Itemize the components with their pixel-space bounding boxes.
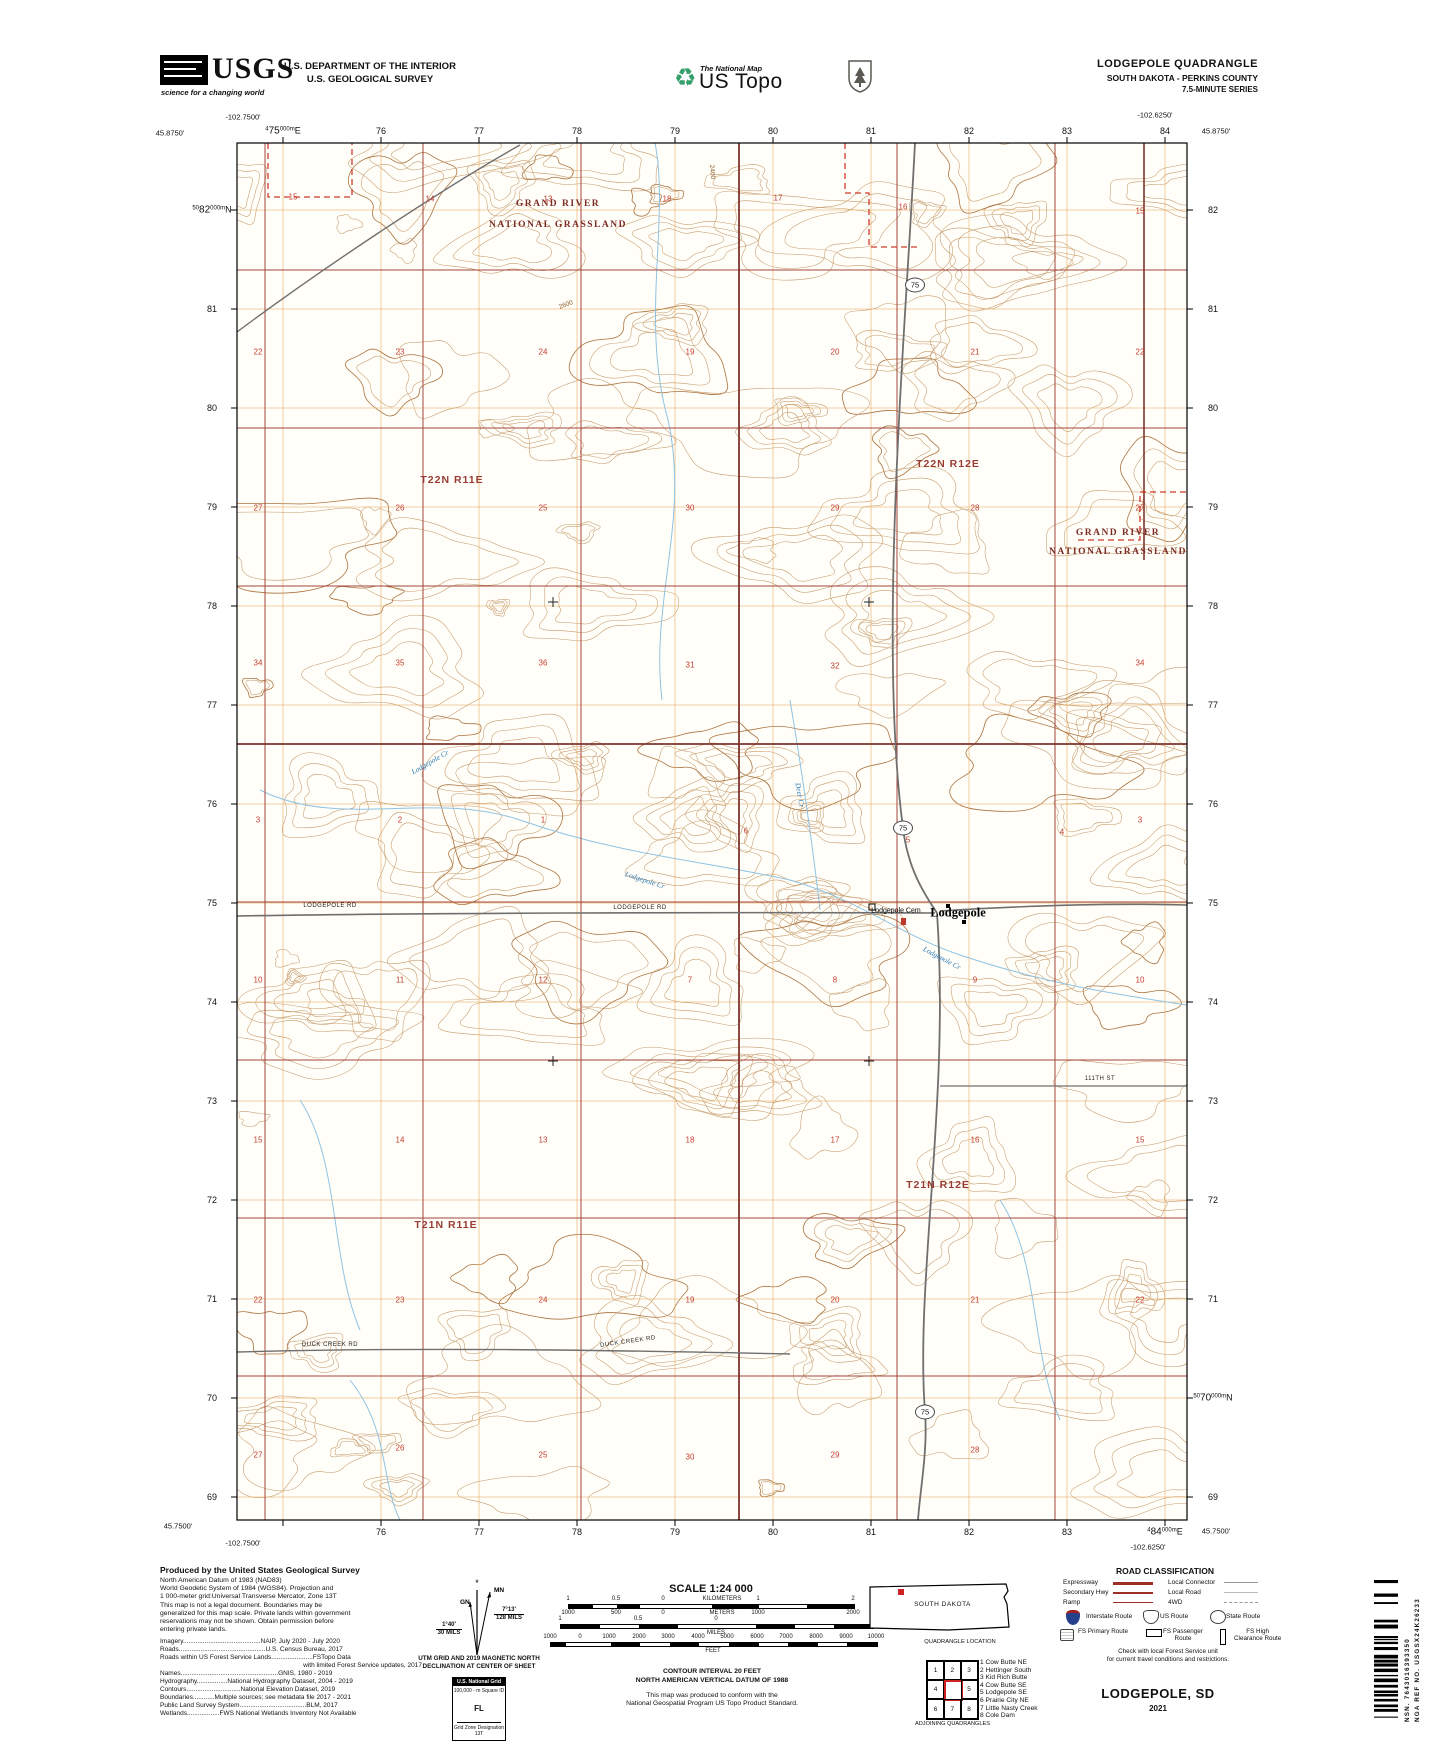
section-number: 16 (971, 1136, 980, 1145)
scale-bar-label: 2000 (632, 1634, 645, 1640)
scale-bar-label: 1 (558, 1616, 561, 1622)
section-number: 34 (1136, 659, 1145, 668)
usng-header: U.S. National Grid (453, 1678, 505, 1686)
northing-label-right: 75 (1208, 898, 1218, 908)
scale-bar-label: METERS (709, 1610, 734, 1616)
northing-label-left: 81 (207, 304, 217, 314)
mn-declination-value: 7°13' 128 MILS (494, 1607, 524, 1622)
scale-title: SCALE 1:24 000 (601, 1583, 821, 1595)
corner-coordinate: -102.7500' (225, 113, 260, 122)
route-shield: 75 (893, 821, 913, 836)
easting-label-bottom: 77 (474, 1527, 484, 1537)
section-number: 7 (688, 976, 692, 985)
section-number: 13 (539, 1136, 548, 1145)
forest-service-note: Check with local Forest Service unit for… (1088, 1648, 1248, 1664)
legend-label: US Route (1160, 1613, 1188, 1620)
conformance-note1: This map was produced to conform with th… (562, 1692, 862, 1699)
easting-label-top: 82 (964, 126, 974, 136)
northing-label-left: 5082000mN (192, 205, 231, 216)
scale-bar-label: 1 (756, 1596, 759, 1602)
place-label: Lodgepole (930, 906, 986, 921)
scale-bar-label: 2 (851, 1596, 854, 1602)
township-label: T22N R12E (916, 458, 980, 470)
northing-label-left: 79 (207, 502, 217, 512)
northing-label-left: 72 (207, 1195, 217, 1205)
road-label: LODGEPOLE RD (613, 905, 666, 911)
northing-label-right: 80 (1208, 403, 1218, 413)
usng-zone: 13T (453, 1731, 505, 1737)
legend-label: Local Connector (1168, 1579, 1215, 1586)
legend-line (1224, 1602, 1258, 1603)
fs-high-icon (1220, 1629, 1226, 1645)
usng-box: U.S. National Grid 100,000 - m Square ID… (452, 1677, 506, 1741)
production-credits: Produced by the United States Geological… (160, 1565, 422, 1718)
route-shield: 75 (905, 278, 925, 293)
adjoining-quadrangle-grid: 12345678 (926, 1660, 979, 1720)
northing-label-right: 71 (1208, 1294, 1218, 1304)
northing-label-left: 69 (207, 1492, 217, 1502)
scale-bar-label: 1000 (561, 1610, 574, 1616)
northing-label-left: 80 (207, 403, 217, 413)
easting-label-top: 84 (1160, 126, 1170, 136)
feet-scale-bar (550, 1642, 878, 1647)
adjoining-quad-cell: 7 (944, 1699, 961, 1718)
legend-line (1224, 1592, 1258, 1593)
section-number: 30 (686, 504, 695, 513)
northing-label-right: 79 (1208, 502, 1218, 512)
adjoining-quad-name: 4 Cow Butte SE (980, 1682, 1038, 1690)
credits-source-line: Boundaries............Multiple sources; … (160, 1694, 422, 1702)
section-number: 32 (831, 662, 840, 671)
scale-bar-label: 0 (578, 1634, 581, 1640)
section-number: 25 (539, 1451, 548, 1460)
section-number: 22 (1136, 348, 1145, 357)
corner-coordinate: -102.7500' (225, 1539, 260, 1548)
section-number: 19 (686, 348, 695, 357)
adjoining-quad-cell: 3 (961, 1661, 978, 1680)
northing-label-right: 77 (1208, 700, 1218, 710)
sheet-title: LODGEPOLE, SD (1058, 1686, 1258, 1701)
adjoining-quad-name: 2 Hettinger South (980, 1667, 1038, 1675)
section-number: 25 (539, 504, 548, 513)
township-label: T21N R12E (906, 1179, 970, 1191)
section-number: 17 (774, 194, 783, 203)
section-number: 24 (539, 348, 548, 357)
adjoining-quad-name: 1 Cow Butte NE (980, 1659, 1038, 1667)
section-number: 26 (396, 1444, 405, 1453)
northing-label-right: 81 (1208, 304, 1218, 314)
scale-bar-label: 1000 (543, 1634, 556, 1640)
topo-map-canvas (0, 0, 1445, 1746)
northing-label-left: 71 (207, 1294, 217, 1304)
scale-bar-label: 4000 (691, 1634, 704, 1640)
declination-diagram: * MN GN (420, 1572, 560, 1658)
scale-bar-label: 0 (714, 1616, 717, 1622)
legend-label: FS Primary Route (1078, 1628, 1128, 1635)
scale-bar-label: 0.5 (634, 1616, 642, 1622)
credits-source-line: Public Land Survey System...............… (160, 1702, 422, 1710)
credits-source-line: Roads within US Forest Service Lands....… (160, 1654, 422, 1662)
scale-bar-label: 2000 (846, 1610, 859, 1616)
declination-caption: UTM GRID AND 2019 MAGNETIC NORTH DECLINA… (404, 1655, 554, 1671)
grassland-label: NATIONAL GRASSLAND (489, 220, 627, 230)
section-number: 16 (899, 203, 908, 212)
adjoining-quad-cell: 2 (944, 1661, 961, 1680)
adjoining-quad-name: 8 Cole Dam (980, 1712, 1038, 1720)
section-number: 22 (254, 348, 263, 357)
grassland-label: NATIONAL GRASSLAND (1049, 547, 1187, 557)
section-number: 22 (254, 1296, 263, 1305)
section-number: 20 (831, 348, 840, 357)
legend-line (1224, 1582, 1258, 1583)
section-number: 22 (1136, 1296, 1145, 1305)
contour-interval-note: CONTOUR INTERVAL 20 FEET (562, 1668, 862, 1675)
usng-square-id: FL (453, 1704, 505, 1713)
barcode (1374, 1576, 1404, 1721)
section-number: 10 (254, 976, 263, 985)
grassland-label: GRAND RIVER (516, 199, 600, 209)
legend-label: Expressway (1063, 1579, 1098, 1586)
section-number: 2 (398, 816, 402, 825)
scale-bar-label: FEET (705, 1648, 720, 1654)
section-number: 1 (541, 816, 545, 825)
map-sheet: USGS science for a changing world U.S. D… (0, 0, 1445, 1746)
northing-label-right: 5070000mN (1193, 1393, 1232, 1404)
place-label: Lodgepole Cem (871, 908, 920, 915)
section-number: 31 (686, 661, 695, 670)
scale-bar-label: KILOMETERS (703, 1596, 742, 1602)
credits-sources: Imagery.................................… (160, 1638, 422, 1718)
section-number: 3 (1138, 816, 1142, 825)
credits-source-line: Hydrography.................National Hyd… (160, 1678, 422, 1686)
corner-coordinate: -102.6250' (1137, 111, 1172, 120)
credits-paragraph-line: World Geodetic System of 1984 (WGS84). P… (160, 1585, 422, 1593)
section-number: 21 (971, 1296, 980, 1305)
section-number: 27 (254, 504, 263, 513)
section-number: 26 (396, 504, 405, 513)
credits-title: Produced by the United States Geological… (160, 1565, 422, 1575)
usng-square-id-label: 100,000 - m Square ID (453, 1688, 505, 1694)
northing-label-left: 77 (207, 700, 217, 710)
section-number: 6 (744, 827, 748, 836)
adjoining-quad-cell: 6 (927, 1699, 944, 1718)
scale-bar-label: 9000 (839, 1634, 852, 1640)
conformance-note2: National Geospatial Program US Topo Prod… (562, 1700, 862, 1707)
contour-elevation-label: 2400 (708, 164, 716, 179)
section-number: 15 (1136, 207, 1145, 216)
credits-paragraph-line: 1 000-meter grid:Universal Transverse Me… (160, 1593, 422, 1601)
northing-label-left: 70 (207, 1393, 217, 1403)
credits-paragraph-line: This map is not a legal document. Bounda… (160, 1602, 422, 1610)
easting-label-top: 79 (670, 126, 680, 136)
credits-paragraph-line: reservations may not be shown. Obtain pe… (160, 1618, 422, 1626)
adjoining-quad-cell: 1 (927, 1661, 944, 1680)
section-number: 3 (256, 816, 260, 825)
section-number: 14 (426, 195, 435, 204)
quad-location-caption: QUADRANGLE LOCATION (880, 1639, 1040, 1645)
legend-label: Secondary Hwy (1063, 1589, 1109, 1596)
section-number: 21 (971, 348, 980, 357)
svg-text:GN: GN (460, 1599, 470, 1606)
easting-label-bottom: 76 (376, 1527, 386, 1537)
section-number: 19 (686, 1296, 695, 1305)
adjoining-quad-name: 7 Little Nasty Creek (980, 1705, 1038, 1713)
scale-bar-label: 1000 (751, 1610, 764, 1616)
section-number: 23 (396, 1296, 405, 1305)
easting-label-top: 76 (376, 126, 386, 136)
legend-line (1113, 1592, 1153, 1594)
easting-label-bottom: 83 (1062, 1527, 1072, 1537)
credits-paragraph-line: entering private lands. (160, 1626, 422, 1634)
section-number: 35 (396, 659, 405, 668)
northing-label-right: 76 (1208, 799, 1218, 809)
scale-bar-label: 3000 (661, 1634, 674, 1640)
credits-paragraph-line: generalized for this map scale. Private … (160, 1610, 422, 1618)
sheet-year: 2021 (1058, 1704, 1258, 1713)
northing-label-left: 78 (207, 601, 217, 611)
legend-line (1113, 1602, 1153, 1603)
true-north-star: * (475, 1578, 479, 1588)
adjoining-quad-name: 3 Kid Rich Butte (980, 1674, 1038, 1682)
legend-label: Interstate Route (1086, 1613, 1132, 1620)
adjoining-quad-cell: 8 (961, 1699, 978, 1718)
adjoining-quad-cell: 4 (927, 1680, 944, 1699)
northing-label-right: 82 (1208, 205, 1218, 215)
credits-source-line: Wetlands..................FWS National W… (160, 1710, 422, 1718)
easting-label-bottom: 79 (670, 1527, 680, 1537)
section-number: 18 (686, 1136, 695, 1145)
scale-bar-label: 0 (661, 1596, 664, 1602)
nsn-number: NSN. 7643016393350 (1404, 1638, 1411, 1722)
scale-bar-label: 5000 (720, 1634, 733, 1640)
easting-label-top: 81 (866, 126, 876, 136)
legend-label: FS High Clearance Route (1234, 1628, 1281, 1642)
scale-bar-label: 1 (566, 1596, 569, 1602)
road-label: LODGEPOLE RD (303, 903, 356, 909)
credits-source-line: Imagery.................................… (160, 1638, 422, 1646)
miles-scale-bar (560, 1624, 874, 1629)
section-number: 15 (254, 1136, 263, 1145)
section-number: 9 (973, 976, 977, 985)
easting-label-top: 83 (1062, 126, 1072, 136)
svg-text:MN: MN (494, 1587, 504, 1594)
state-shield-icon (1210, 1610, 1226, 1624)
legend-label: FS Passenger Route (1163, 1628, 1203, 1642)
easting-label-bottom: 484000mE (1147, 1527, 1183, 1538)
section-number: 27 (254, 1451, 263, 1460)
state-name: SOUTH DAKOTA (880, 1601, 1005, 1608)
credits-paragraph-line: North American Datum of 1983 (NAD83) (160, 1577, 422, 1585)
quad-location-marker (898, 1589, 904, 1595)
northing-label-right: 73 (1208, 1096, 1218, 1106)
northing-label-right: 69 (1208, 1492, 1218, 1502)
credits-source-line: Contours..............................Na… (160, 1686, 422, 1694)
section-number: 29 (831, 1451, 840, 1460)
easting-label-top: 78 (572, 126, 582, 136)
section-number: 23 (396, 348, 405, 357)
credits-source-line: Names...................................… (160, 1670, 422, 1678)
credits-source-line: with limited Forest Service updates, 201… (160, 1662, 422, 1670)
section-number: 4 (1060, 828, 1064, 837)
adjoining-caption: ADJOINING QUADRANGLES (900, 1721, 1005, 1727)
scale-bar-label: 500 (611, 1610, 621, 1616)
adjoining-quad-name: 5 Lodgepole SE (980, 1689, 1038, 1697)
easting-label-bottom: 80 (768, 1527, 778, 1537)
northing-label-left: 73 (207, 1096, 217, 1106)
legend-label: 4WD (1168, 1599, 1182, 1606)
section-number: 10 (1136, 976, 1145, 985)
legend-label: State Route (1226, 1613, 1260, 1620)
section-number: 34 (254, 659, 263, 668)
easting-label-top: 475000mE (265, 126, 301, 137)
section-number: 15 (1136, 1136, 1145, 1145)
northing-label-right: 72 (1208, 1195, 1218, 1205)
scale-bar-label: 7000 (779, 1634, 792, 1640)
adjoining-quadrangle-list: 1 Cow Butte NE2 Hettinger South3 Kid Ric… (980, 1659, 1038, 1720)
section-number: 15 (289, 193, 298, 202)
easting-label-top: 80 (768, 126, 778, 136)
easting-label-top: 77 (474, 126, 484, 136)
legend-line (1113, 1582, 1153, 1585)
scale-bar-label: 1000 (602, 1634, 615, 1640)
legend-label: Ramp (1063, 1599, 1080, 1606)
easting-label-bottom: 82 (964, 1527, 974, 1537)
township-label: T22N R11E (420, 474, 483, 486)
scale-bar-label: 0 (661, 1610, 664, 1616)
section-number: 17 (831, 1136, 840, 1145)
corner-coordinate: 45.8750' (1202, 127, 1231, 136)
section-number: 20 (831, 1296, 840, 1305)
route-shield: 75 (915, 1405, 935, 1420)
section-number: 36 (539, 659, 548, 668)
easting-label-bottom: 78 (572, 1527, 582, 1537)
section-number: 18 (663, 195, 672, 204)
section-number: 30 (686, 1453, 695, 1462)
section-number: 11 (396, 976, 404, 985)
northing-label-right: 78 (1208, 601, 1218, 611)
fs-passenger-icon (1146, 1629, 1162, 1637)
road-label: DUCK CREEK RD (302, 1342, 358, 1348)
scale-bar-label: 6000 (750, 1634, 763, 1640)
fs-primary-icon (1060, 1629, 1074, 1641)
credits-source-line: Roads...................................… (160, 1646, 422, 1654)
northing-label-left: 74 (207, 997, 217, 1007)
corner-coordinate: 45.8750' (156, 129, 185, 138)
section-number: 8 (833, 976, 837, 985)
adjoining-quad-name: 6 Prairie City NE (980, 1697, 1038, 1705)
section-number: 12 (539, 976, 548, 985)
vertical-datum-note: NORTH AMERICAN VERTICAL DATUM OF 1988 (562, 1677, 862, 1684)
legend-label: Local Road (1168, 1589, 1201, 1596)
section-number: 14 (396, 1136, 405, 1145)
road-classification-title: ROAD CLASSIFICATION (1080, 1566, 1250, 1576)
northing-label-left: 75 (207, 898, 217, 908)
easting-label-bottom: 81 (866, 1527, 876, 1537)
corner-coordinate: 45.7500' (164, 1522, 193, 1531)
section-number: 27 (1136, 504, 1145, 513)
northing-label-right: 74 (1208, 997, 1218, 1007)
kilometers-meters-scale-bar (568, 1604, 855, 1609)
corner-coordinate: 45.7500' (1202, 1527, 1231, 1536)
road-label: 111TH ST (1085, 1076, 1115, 1082)
nga-ref-number: NGA REF NO. USGSX24K26233 (1414, 1598, 1421, 1722)
grassland-label: GRAND RIVER (1076, 528, 1160, 538)
scale-bar-label: 0.5 (612, 1596, 620, 1602)
section-number: 28 (971, 1446, 980, 1455)
township-label: T21N R11E (414, 1219, 477, 1231)
corner-coordinate: -102.6250' (1130, 1543, 1165, 1552)
gn-declination-value: 1°40' 30 MILS (436, 1622, 462, 1637)
adjoining-quad-cell: 5 (961, 1680, 978, 1699)
section-number: 5 (906, 836, 910, 845)
section-number: 28 (971, 504, 980, 513)
section-number: 24 (539, 1296, 548, 1305)
section-number: 29 (831, 504, 840, 513)
northing-label-left: 76 (207, 799, 217, 809)
credits-paragraph: North American Datum of 1983 (NAD83)Worl… (160, 1577, 422, 1634)
scale-bar-label: 8000 (809, 1634, 822, 1640)
